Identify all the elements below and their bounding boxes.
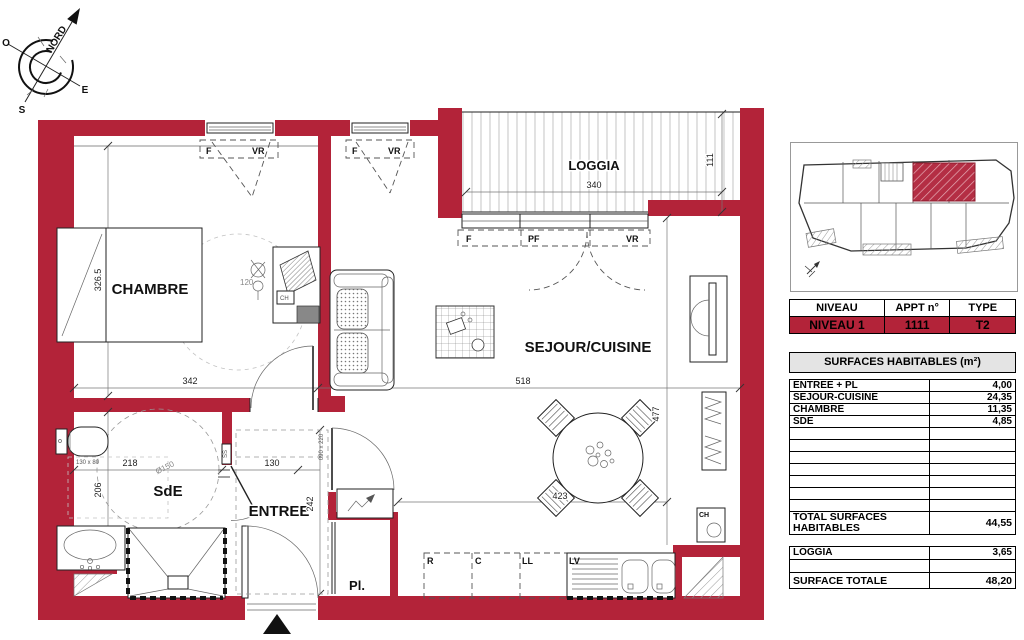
surface-label: ENTREE + PL bbox=[790, 380, 930, 392]
desk: CH bbox=[273, 247, 320, 323]
dim-sejour-height: 477 bbox=[651, 406, 661, 421]
chambre-window: F VR bbox=[200, 120, 278, 197]
loggia-window-band: F PF VR bbox=[458, 214, 650, 290]
kitchen-run: R C LL LV bbox=[424, 553, 675, 598]
empty-row bbox=[790, 428, 1016, 440]
entree-label: ENTREE bbox=[249, 503, 310, 520]
towel-rail: SS bbox=[222, 444, 231, 464]
compass-south-label: S bbox=[19, 105, 26, 116]
cooker-label: C bbox=[475, 556, 482, 566]
info-panel: NIVEAU APPT n° TYPE NIVEAU 1 1111 T2 SUR… bbox=[780, 0, 1024, 640]
locator-drawing bbox=[791, 143, 1017, 291]
dim-loggia-width: 340 bbox=[586, 180, 601, 190]
stairwell bbox=[881, 163, 903, 181]
sejour-left-window: F VR bbox=[346, 120, 414, 193]
surface-value: 11,35 bbox=[930, 404, 1016, 416]
north-arrow-icon bbox=[67, 8, 80, 25]
total-label: TOTAL SURFACES HABITABLES bbox=[790, 512, 930, 535]
compass-east-label: E bbox=[82, 85, 89, 96]
loggia-table: LOGGIA 3,65 SURFACE TOTALE 48,20 bbox=[789, 546, 1016, 589]
loggia-row-label: LOGGIA bbox=[790, 547, 930, 560]
rug bbox=[436, 306, 494, 358]
floor-plan-drawing: NORD O E S bbox=[0, 0, 778, 640]
surface-label: SEJOUR-CUISINE bbox=[790, 392, 930, 404]
balcony bbox=[863, 244, 911, 255]
window-vr-label: VR bbox=[252, 146, 265, 156]
desk-drawer bbox=[297, 306, 319, 323]
window-f-label: F bbox=[206, 146, 212, 156]
dim-entree-height: 242 bbox=[305, 496, 315, 511]
dim-sde-turn: Ø150 bbox=[154, 459, 176, 476]
empty-row bbox=[790, 476, 1016, 488]
chambre-door bbox=[250, 346, 318, 412]
highlighted-apartment bbox=[913, 163, 975, 201]
loggia-row-value: 3,65 bbox=[930, 547, 1016, 560]
sofa bbox=[330, 270, 394, 390]
surfaces-table: ENTREE + PL 4,00 SEJOUR-CUISINE 24,35 CH… bbox=[789, 379, 1016, 535]
toilet bbox=[56, 427, 108, 456]
empty-row bbox=[790, 440, 1016, 452]
window-vr-label: VR bbox=[626, 234, 639, 244]
towel-rail-label: SS bbox=[223, 450, 229, 458]
surface-label: SDE bbox=[790, 416, 930, 428]
sde-room: 130 x 80 SS bbox=[56, 409, 231, 598]
info-value-row: NIVEAU 1 1111 T2 bbox=[790, 317, 1016, 334]
table-row: LOGGIA 3,65 bbox=[790, 547, 1016, 560]
empty-row bbox=[790, 488, 1016, 500]
window-vr-label: VR bbox=[388, 146, 401, 156]
grand-total-row: SURFACE TOTALE 48,20 bbox=[790, 573, 1016, 589]
dim-chambre-height: 326.5 bbox=[93, 269, 103, 292]
window-f-label: F bbox=[466, 234, 472, 244]
type-value: T2 bbox=[950, 317, 1016, 334]
window-pf-label: PF bbox=[528, 234, 540, 244]
surface-value: 24,35 bbox=[930, 392, 1016, 404]
tv-console bbox=[690, 276, 727, 362]
water-heater: CH bbox=[697, 508, 725, 542]
window-f-label: F bbox=[352, 146, 358, 156]
dim-loggia-depth: 111 bbox=[705, 153, 715, 167]
floor-plan-page: NORD O E S bbox=[0, 0, 1024, 640]
total-row: TOTAL SURFACES HABITABLES 44,55 bbox=[790, 512, 1016, 535]
sde-label: SdE bbox=[153, 483, 182, 500]
building-locator bbox=[790, 142, 1018, 292]
mini-compass-icon bbox=[805, 261, 820, 277]
compass-rose: NORD O E S bbox=[2, 8, 89, 116]
placard-label: Pl. bbox=[349, 578, 365, 593]
entrance-door bbox=[242, 526, 318, 634]
desk-dim-note: 120 bbox=[240, 278, 254, 287]
empty-row bbox=[790, 560, 1016, 573]
door-size-note: 090 x 220 bbox=[319, 433, 325, 460]
table-row: CHAMBRE 11,35 bbox=[790, 404, 1016, 416]
niveau-header: NIVEAU bbox=[790, 300, 885, 317]
washbasin bbox=[57, 526, 125, 570]
surface-value: 4,85 bbox=[930, 416, 1016, 428]
sejour-label: SEJOUR/CUISINE bbox=[525, 339, 652, 356]
appt-header: APPT n° bbox=[884, 300, 950, 317]
dining-table bbox=[553, 413, 643, 503]
apartment-info-table: NIVEAU APPT n° TYPE NIVEAU 1 1111 T2 bbox=[789, 299, 1016, 334]
compass-west-label: O bbox=[2, 38, 10, 49]
fridge-label: R bbox=[427, 556, 434, 566]
loggia-label: LOGGIA bbox=[568, 158, 620, 173]
info-header-row: NIVEAU APPT n° TYPE bbox=[790, 300, 1016, 317]
closet bbox=[332, 522, 335, 594]
surface-label: CHAMBRE bbox=[790, 404, 930, 416]
electrical-panel bbox=[337, 489, 393, 518]
appt-value: 1111 bbox=[884, 317, 950, 334]
dim-dining-width: 423 bbox=[552, 491, 567, 501]
water-heater-label: CH bbox=[699, 512, 709, 519]
dishwasher-label: LV bbox=[569, 556, 580, 566]
type-header: TYPE bbox=[950, 300, 1016, 317]
grand-total-label: SURFACE TOTALE bbox=[790, 573, 930, 589]
table-row: ENTREE + PL 4,00 bbox=[790, 380, 1016, 392]
dim-entree-width: 130 bbox=[264, 458, 279, 468]
shower bbox=[128, 528, 225, 598]
surface-value: 4,00 bbox=[930, 380, 1016, 392]
chambre-room: CH 120 bbox=[57, 228, 320, 370]
dim-sde-height: 206 bbox=[93, 482, 103, 497]
sink-unit bbox=[567, 553, 675, 598]
surfaces-title: SURFACES HABITABLES (m²) bbox=[789, 352, 1016, 373]
grand-total-value: 48,20 bbox=[930, 573, 1016, 589]
chambre-label: CHAMBRE bbox=[112, 281, 189, 298]
total-value: 44,55 bbox=[930, 512, 1016, 535]
empty-row bbox=[790, 452, 1016, 464]
radiator bbox=[702, 392, 726, 470]
dim-sejour-width: 518 bbox=[515, 376, 530, 386]
table-row: SEJOUR-CUISINE 24,35 bbox=[790, 392, 1016, 404]
niveau-value: NIVEAU 1 bbox=[790, 317, 885, 334]
table-row: SDE 4,85 bbox=[790, 416, 1016, 428]
desk-unit-label: CH bbox=[280, 296, 289, 302]
empty-row bbox=[790, 500, 1016, 512]
dim-chambre-width: 342 bbox=[182, 376, 197, 386]
wc-zone-note: 130 x 80 bbox=[76, 460, 100, 466]
dim-sde-width: 218 bbox=[122, 458, 137, 468]
sejour-door bbox=[332, 428, 394, 490]
washer-label: LL bbox=[522, 556, 533, 566]
empty-row bbox=[790, 464, 1016, 476]
balcony bbox=[853, 160, 871, 168]
